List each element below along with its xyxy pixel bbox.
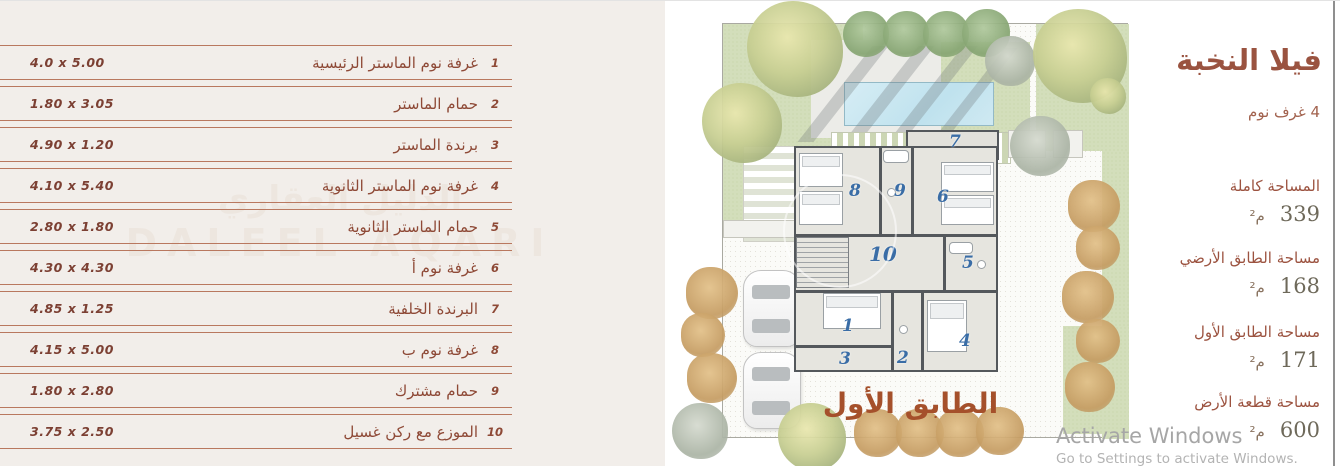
area-label: مساحة قطعة الأرض: [1142, 393, 1320, 411]
floor-title: الطابق الأول: [818, 387, 1003, 420]
room-index: 2: [478, 97, 512, 111]
interior-wall: [921, 290, 924, 370]
interior-wall: [943, 234, 946, 290]
car-windshield: [752, 367, 790, 381]
area-value: 339 م²: [1142, 202, 1320, 226]
room-dimensions: 3.75 x 2.50: [0, 424, 170, 439]
bathtub: [883, 150, 909, 163]
interior-wall: [911, 148, 914, 234]
area-unit: م²: [1250, 207, 1265, 225]
activate-windows-watermark: Activate Windows: [1056, 424, 1242, 448]
car-rear-window: [752, 401, 790, 415]
room-index: 7: [478, 302, 512, 316]
room-schedule-panel: الدليل العقاري DALEEL AQARI 4.0 x 5.00 غ…: [0, 1, 665, 466]
room-name: حمام الماستر: [170, 95, 478, 113]
table-row: 4.90 x 1.20 برندة الماستر 3: [0, 127, 512, 162]
area-ground-floor: مساحة الطابق الأرضي 168 م²: [1142, 249, 1320, 298]
area-label: المساحة كاملة: [1142, 177, 1320, 195]
room-index: 6: [478, 261, 512, 275]
room-name: غرفة نوم الماستر الرئيسية: [170, 54, 478, 72]
room-dimensions: 1.80 x 2.80: [0, 383, 170, 398]
room-dimensions: 4.0 x 5.00: [0, 55, 170, 70]
area-value: 171 م²: [1142, 348, 1320, 372]
room-name: غرفة نوم الماستر الثانوية: [170, 177, 478, 195]
area-number: 600: [1280, 418, 1320, 442]
room-index: 8: [478, 343, 512, 357]
tree: [1068, 180, 1120, 232]
tree: [672, 403, 728, 459]
room-label-5: 5: [962, 253, 974, 273]
watermark-circle: [783, 174, 897, 288]
room-label-9: 9: [894, 181, 906, 201]
tree: [1076, 226, 1120, 270]
room-label-2: 2: [897, 348, 909, 368]
room-label-7: 7: [949, 132, 961, 152]
area-number: 171: [1280, 348, 1320, 372]
tree: [1076, 319, 1120, 363]
room-dimensions: 4.15 x 5.00: [0, 342, 170, 357]
room-name: الموزع مع ركن غسيل: [170, 423, 478, 441]
area-unit: م²: [1250, 353, 1265, 371]
area-number: 168: [1280, 274, 1320, 298]
room-index: 3: [478, 138, 512, 152]
area-unit: م²: [1250, 279, 1265, 297]
room-dimensions: 4.10 x 5.40: [0, 178, 170, 193]
table-row: 4.10 x 5.40 غرفة نوم الماستر الثانوية 4: [0, 168, 512, 203]
room-index: 1: [478, 56, 512, 70]
room-name: غرفة نوم أ: [170, 259, 478, 277]
area-total: المساحة كاملة 339 م²: [1142, 177, 1320, 226]
window-edge-line: [1333, 1, 1335, 466]
area-unit: م²: [1250, 423, 1265, 441]
interior-wall: [891, 290, 894, 370]
room-name: غرفة نوم ب: [170, 341, 478, 359]
table-row: 4.30 x 4.30 غرفة نوم أ 6: [0, 250, 512, 285]
room-dimensions: 4.90 x 1.20: [0, 137, 170, 152]
room-dimensions: 4.30 x 4.30: [0, 260, 170, 275]
table-row: 3.75 x 2.50 الموزع مع ركن غسيل 10: [0, 414, 512, 449]
room-index: 5: [478, 220, 512, 234]
room-dimensions: 1.80 x 3.05: [0, 96, 170, 111]
area-number: 339: [1280, 202, 1320, 226]
tree: [985, 36, 1035, 86]
room-schedule-table: 4.0 x 5.00 غرفة نوم الماستر الرئيسية 1 1…: [0, 45, 512, 455]
tree: [702, 83, 782, 163]
tree: [687, 353, 737, 403]
info-panel: فيلا النخبة 4 غرف نوم المساحة كاملة 339 …: [1140, 1, 1330, 466]
room-label-4: 4: [959, 331, 971, 351]
table-row: 4.15 x 5.00 غرفة نوم ب 8: [0, 332, 512, 367]
tree: [681, 313, 725, 357]
room-label-6: 6: [937, 187, 949, 207]
tree: [1090, 78, 1126, 114]
tree: [1062, 271, 1114, 323]
room-name: البرندة الخلفية: [170, 300, 478, 318]
room-name: برندة الماستر: [170, 136, 478, 154]
table-row: 1.80 x 2.80 حمام مشترك 9: [0, 373, 512, 408]
tree: [686, 267, 738, 319]
room-name: حمام الماستر الثانوية: [170, 218, 478, 236]
table-row: 1.80 x 3.05 حمام الماستر 2: [0, 86, 512, 121]
table-row: 2.80 x 1.80 حمام الماستر الثانوية 5: [0, 209, 512, 244]
activate-windows-hint: Go to Settings to activate Windows.: [1056, 451, 1298, 466]
bedroom-count: 4 غرف نوم: [1142, 103, 1320, 121]
area-label: مساحة الطابق الأول: [1142, 323, 1320, 341]
room-dimensions: 2.80 x 1.80: [0, 219, 170, 234]
villa-title: فيلا النخبة: [1142, 43, 1322, 77]
room-index: 10: [478, 425, 512, 439]
car-windshield: [752, 285, 790, 299]
room-index: 9: [478, 384, 512, 398]
tree: [1065, 362, 1115, 412]
car-rear-window: [752, 319, 790, 333]
table-row: 4.0 x 5.00 غرفة نوم الماستر الرئيسية 1: [0, 45, 512, 80]
room-label-1: 1: [842, 316, 854, 336]
toilet: [899, 325, 908, 334]
table-row: 4.85 x 1.25 البرندة الخلفية 7: [0, 291, 512, 326]
tree: [747, 1, 843, 97]
tree: [1010, 116, 1070, 176]
room-dimensions: 4.85 x 1.25: [0, 301, 170, 316]
interior-wall: [796, 345, 893, 348]
area-label: مساحة الطابق الأرضي: [1142, 249, 1320, 267]
room-index: 4: [478, 179, 512, 193]
area-value: 168 م²: [1142, 274, 1320, 298]
area-first-floor: مساحة الطابق الأول 171 م²: [1142, 323, 1320, 372]
toilet: [977, 260, 986, 269]
room-name: حمام مشترك: [170, 382, 478, 400]
floorplan-brochure-page: الدليل العقاري DALEEL AQARI 4.0 x 5.00 غ…: [0, 0, 1340, 466]
room-label-3: 3: [839, 349, 851, 369]
